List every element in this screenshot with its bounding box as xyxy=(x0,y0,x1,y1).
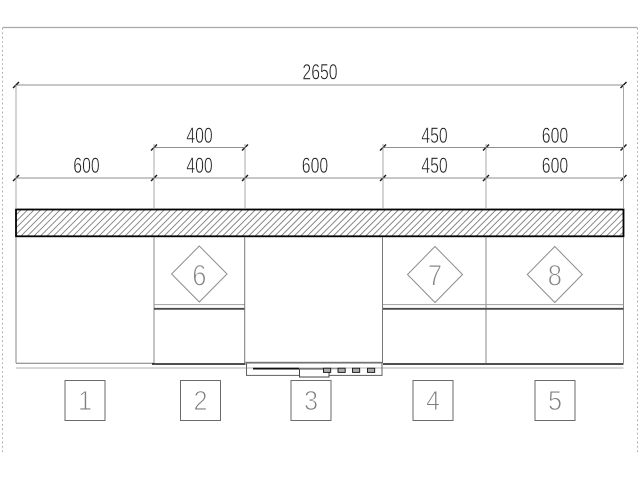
svg-text:400: 400 xyxy=(186,125,212,149)
svg-text:600: 600 xyxy=(542,155,568,179)
svg-text:6: 6 xyxy=(192,259,206,292)
svg-text:1: 1 xyxy=(78,385,92,417)
svg-text:400: 400 xyxy=(186,155,212,179)
svg-text:2650: 2650 xyxy=(302,61,337,85)
svg-text:450: 450 xyxy=(421,155,447,179)
svg-text:4: 4 xyxy=(426,385,440,417)
svg-text:450: 450 xyxy=(421,125,447,149)
svg-text:600: 600 xyxy=(302,155,328,179)
svg-text:2: 2 xyxy=(193,385,207,417)
svg-text:3: 3 xyxy=(304,385,318,417)
svg-text:600: 600 xyxy=(542,125,568,149)
svg-text:8: 8 xyxy=(548,259,562,292)
svg-text:5: 5 xyxy=(548,385,562,417)
svg-text:600: 600 xyxy=(73,155,99,179)
svg-text:7: 7 xyxy=(428,259,442,292)
